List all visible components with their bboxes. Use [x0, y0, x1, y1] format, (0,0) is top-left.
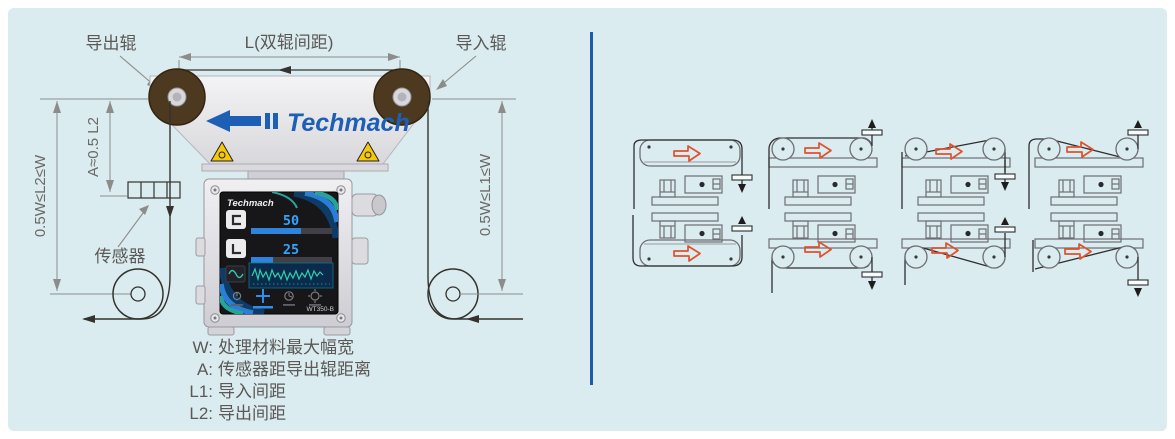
dancer-weight — [1128, 280, 1148, 285]
outfeed-roller-label: 导出辊 — [86, 34, 137, 53]
dim-l1-label: 0.5W≤L1≤W — [477, 153, 494, 236]
display-button-bottom[interactable] — [226, 239, 246, 258]
display-brand: Techmach — [227, 198, 274, 209]
dancer-weight — [732, 226, 752, 231]
display-model: WT350-B — [307, 306, 334, 313]
section-divider — [590, 32, 593, 385]
dancer-weight — [995, 174, 1015, 179]
legend-row: L1:导入间距 — [183, 381, 371, 403]
legend-text: 导出间距 — [218, 404, 286, 423]
web-right — [428, 101, 523, 323]
dancer-weight — [862, 272, 882, 277]
web-direction-arrow — [805, 242, 831, 257]
dim-l2-label: 0.5W≤L2≤W — [32, 154, 49, 237]
schematic-7 — [894, 187, 1027, 302]
progress-fill-top — [251, 228, 301, 234]
display-value-top: 50 — [283, 213, 299, 229]
dim-a-label: A≈0.5 L2 — [85, 117, 102, 177]
web-direction-arrow — [278, 66, 291, 74]
sensor-label: 传感器 — [95, 247, 146, 266]
web-direction-arrow — [674, 246, 700, 261]
legend-key: A: — [183, 359, 213, 381]
legend-text: 传感器距导出辊距离 — [218, 360, 371, 379]
web-direction-arrow — [805, 143, 831, 158]
dancer-weight — [732, 175, 752, 180]
leader-arrow — [436, 79, 447, 90]
sensor — [128, 182, 180, 198]
legend-text: 导入间距 — [218, 382, 286, 401]
legend-key: L1: — [183, 381, 213, 403]
outfeed-roller — [149, 69, 205, 125]
leader-arrow — [139, 205, 149, 215]
schematic-6 — [761, 187, 894, 302]
display-button-top[interactable] — [226, 210, 246, 229]
brand-logo: Techmach — [287, 109, 410, 137]
schematic-5 — [628, 187, 761, 302]
display-value-bottom: 25 — [283, 242, 299, 258]
mount-plate — [202, 164, 388, 171]
legend: W:处理材料最大幅宽 A:传感器距导出辊距离 L1:导入间距 L2:导出间距 — [183, 337, 371, 425]
schematics-grid — [598, 0, 1175, 439]
schematic-8 — [1027, 187, 1160, 302]
dancer-weight — [1128, 130, 1148, 135]
progress-fill-bottom — [251, 257, 273, 263]
legend-row: L2:导出间距 — [183, 403, 371, 425]
page: L(双辊间距) 导出辊 导入辊 Te — [0, 0, 1175, 439]
dancer-weight — [862, 130, 882, 135]
legend-text: 处理材料最大幅宽 — [218, 338, 354, 357]
legend-row: W:处理材料最大幅宽 — [183, 337, 371, 359]
web-direction-arrow — [1065, 244, 1091, 259]
dancer-weight — [995, 227, 1015, 232]
controller-display: Techmach 50 25 — [220, 192, 338, 314]
infeed-roller-label: 导入辊 — [456, 34, 507, 53]
roller-spacing-label: L(双辊间距) — [245, 33, 334, 52]
legend-row: A:传感器距导出辊距离 — [183, 359, 371, 381]
web-direction-arrow — [674, 146, 700, 161]
legend-key: W: — [183, 337, 213, 359]
legend-key: L2: — [183, 403, 213, 425]
web-direction-arrow — [932, 243, 958, 258]
